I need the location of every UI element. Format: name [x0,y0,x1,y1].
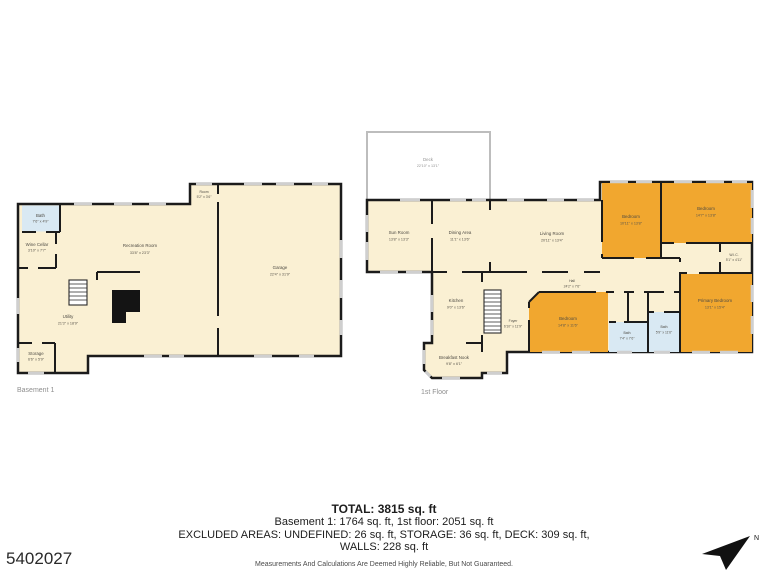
first-floor-plan-drawing: Deck 22'10" x 13'1" Sun Room 13'8" x 13'… [362,130,764,396]
room-dims-storage: 6'6" x 5'9" [28,358,45,362]
compass-icon: N [700,528,766,574]
total-area-line: TOTAL: 3815 sq. ft [0,503,768,516]
disclaimer-text: Measurements And Calculations Are Deemed… [0,561,768,568]
room-label-sun-room: Sun Room [389,230,410,235]
room-dims-wine-cellar: 3'10" x 7'7" [28,249,47,253]
room-dims-hall: 24'2" x 7'6" [564,285,582,289]
room-label-kitchen: Kitchen [449,298,464,303]
room-label-wic: W.I.C. [729,253,738,257]
room-dims-foyer: 6'10" x 11'9" [504,325,523,329]
room-dims-dining-area: 11'1" x 13'6" [450,238,471,242]
floor-areas-line: Basement 1: 1764 sq. ft, 1st floor: 2051… [0,516,768,529]
excluded-areas-line: EXCLUDED AREAS: UNDEFINED: 26 sq. ft, ST… [0,529,768,542]
room-label-primary-bedroom: Primary Bedroom [698,298,733,303]
room-dims-sun-room: 13'8" x 13'3" [389,238,410,242]
room-dims-bath-2: 5'9" x 11'6" [656,331,673,335]
area-summary: TOTAL: 3815 sq. ft Basement 1: 1764 sq. … [0,503,768,568]
room-label-wine-cellar: Wine Cellar [26,242,49,247]
room-label-living-room: Living Room [540,231,565,236]
first-floor-staircase [484,290,501,333]
room-label-bath: Bath [36,213,46,218]
room-dims-breakfast-nook: 9'8" x 6'1" [446,362,463,366]
primary-bedroom-room [681,274,752,352]
bedroom-3-room [529,292,608,352]
basement-plan: Bath 7'6" x 4'9" Wine Cellar 3'10" x 7'7… [14,180,348,394]
walls-area-line: WALLS: 228 sq. ft [0,541,768,554]
room-dims-wic: 5'1" x 4'11" [726,258,743,262]
north-label: N [754,535,759,542]
floor-plan-page: Bath 7'6" x 4'9" Wine Cellar 3'10" x 7'7… [0,0,768,576]
room-label-bath-1: Bath [624,331,631,335]
first-floor-caption: 1st Floor [421,389,448,396]
room-label-bath-2: Bath [661,325,668,329]
room-dims-kitchen: 9'0" x 13'6" [447,306,466,310]
room-dims-recreation-room: 33'8" x 23'3" [130,251,151,255]
room-label-room: Room [199,190,208,194]
room-label-hall: Hall [569,279,575,283]
room-label-storage: Storage [28,351,44,356]
room-label-foyer: Foyer [509,319,519,323]
compass: N [700,528,766,574]
room-label-dining-area: Dining Area [449,230,472,235]
room-dims-deck: 22'10" x 13'1" [417,164,440,168]
room-label-bedroom-1: Bedroom [622,214,640,219]
basement-bath-room [22,206,59,232]
photo-id: 5402027 [6,549,72,569]
room-label-deck: Deck [423,157,434,162]
room-dims-living-room: 20'11" x 13'4" [541,239,564,243]
room-dims-bedroom-2: 14'7" x 13'8" [696,214,717,218]
bedroom-1-room [602,183,660,258]
room-label-recreation-room: Recreation Room [123,243,158,248]
room-dims-bath: 7'6" x 4'9" [32,220,49,224]
basement-plan-drawing: Bath 7'6" x 4'9" Wine Cellar 3'10" x 7'7… [14,180,348,394]
basement-rooms [18,184,341,373]
room-label-utility: Utility [63,314,75,319]
north-arrow-icon [702,536,750,570]
room-dims-bath-1: 7'4" x 7'6" [620,337,636,341]
room-label-bedroom-2: Bedroom [697,206,715,211]
room-dims-bedroom-1: 10'11" x 13'8" [620,222,643,226]
first-floor-plan: Deck 22'10" x 13'1" Sun Room 13'8" x 13'… [362,130,764,396]
room-dims-utility: 21'3" x 18'9" [58,322,79,326]
room-dims-primary-bedroom: 13'1" x 15'4" [705,306,726,310]
room-label-bedroom-3: Bedroom [559,316,577,321]
room-dims-room: 5'2" x 3'6" [197,195,213,199]
room-dims-bedroom-3: 14'8" x 11'6" [558,324,579,328]
first-floor-rooms [367,132,752,378]
room-label-breakfast-nook: Breakfast Nook [439,355,470,360]
basement-caption: Basement 1 [17,387,54,394]
room-label-garage: Garage [273,265,288,270]
room-dims-garage: 22'4" x 31'9" [270,273,291,277]
